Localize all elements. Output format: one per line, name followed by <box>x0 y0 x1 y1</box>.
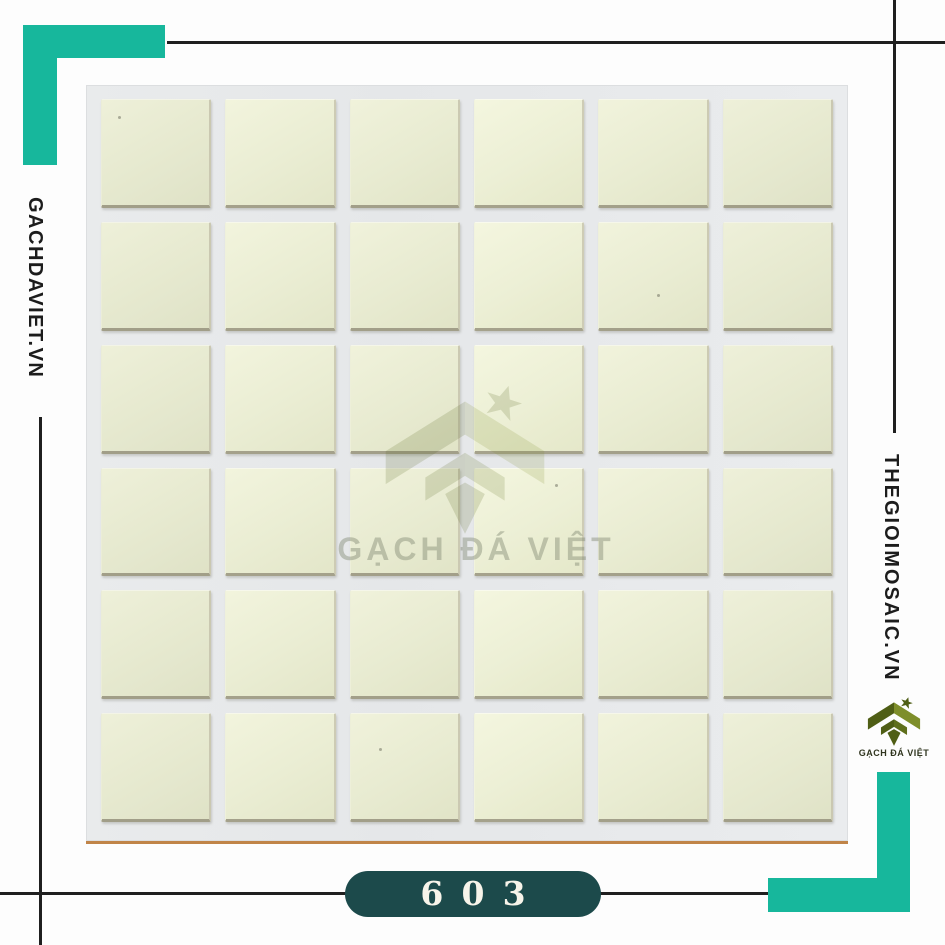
tile-speck <box>555 484 558 487</box>
mosaic-tile <box>723 468 833 577</box>
mosaic-tile <box>225 99 335 208</box>
left-brand-url: GACHDAVIET.VN <box>23 197 46 397</box>
tile-speck <box>379 748 382 751</box>
teal-corner-bracket-top-left-arm <box>23 25 57 165</box>
mosaic-tile <box>225 590 335 699</box>
mosaic-tile <box>474 345 584 454</box>
product-card: GACHDAVIET.VN THEGIOIMOSAIC.VN GẠCH ĐÁ V… <box>0 0 945 945</box>
mosaic-tile <box>350 99 460 208</box>
tile-speck <box>118 116 121 119</box>
top-rule-line <box>167 41 945 44</box>
tile-speck <box>657 294 660 297</box>
mosaic-tile <box>101 345 211 454</box>
mosaic-tile <box>598 345 708 454</box>
right-brand-url: THEGIOIMOSAIC.VN <box>879 454 902 702</box>
mosaic-tile <box>723 222 833 331</box>
tile-sheet-photo: GẠCH ĐÁ VIỆT <box>86 85 848 844</box>
mosaic-tile <box>350 713 460 822</box>
teal-corner-bracket-bottom-right-arm <box>877 772 910 912</box>
mosaic-tile <box>723 590 833 699</box>
mosaic-tile <box>225 222 335 331</box>
mosaic-tile <box>350 590 460 699</box>
product-code-badge: 603 <box>345 871 601 917</box>
gem-logo-icon <box>866 697 922 747</box>
mosaic-tile <box>474 222 584 331</box>
left-rule-line <box>39 417 42 945</box>
mosaic-tile <box>101 713 211 822</box>
right-rule-line <box>893 0 896 433</box>
brand-logo-caption: GẠCH ĐÁ VIỆT <box>848 748 940 758</box>
mosaic-tile <box>474 99 584 208</box>
mosaic-tile <box>474 713 584 822</box>
mosaic-tile <box>101 468 211 577</box>
mosaic-tile <box>598 468 708 577</box>
mosaic-tile <box>598 713 708 822</box>
mosaic-tile <box>598 590 708 699</box>
mosaic-tile <box>101 222 211 331</box>
mosaic-tile <box>598 99 708 208</box>
brand-logo: GẠCH ĐÁ VIỆT <box>848 697 940 758</box>
mosaic-tile <box>474 590 584 699</box>
mosaic-tile <box>723 713 833 822</box>
mosaic-tile <box>598 222 708 331</box>
mosaic-tile <box>350 222 460 331</box>
mosaic-tile <box>225 468 335 577</box>
mosaic-tile <box>225 345 335 454</box>
mosaic-tile <box>723 345 833 454</box>
mosaic-tile <box>474 468 584 577</box>
tile-grid <box>101 99 833 822</box>
mosaic-tile <box>101 99 211 208</box>
mosaic-tile <box>101 590 211 699</box>
mosaic-tile <box>350 345 460 454</box>
mosaic-tile <box>225 713 335 822</box>
mosaic-tile <box>723 99 833 208</box>
mosaic-tile <box>350 468 460 577</box>
